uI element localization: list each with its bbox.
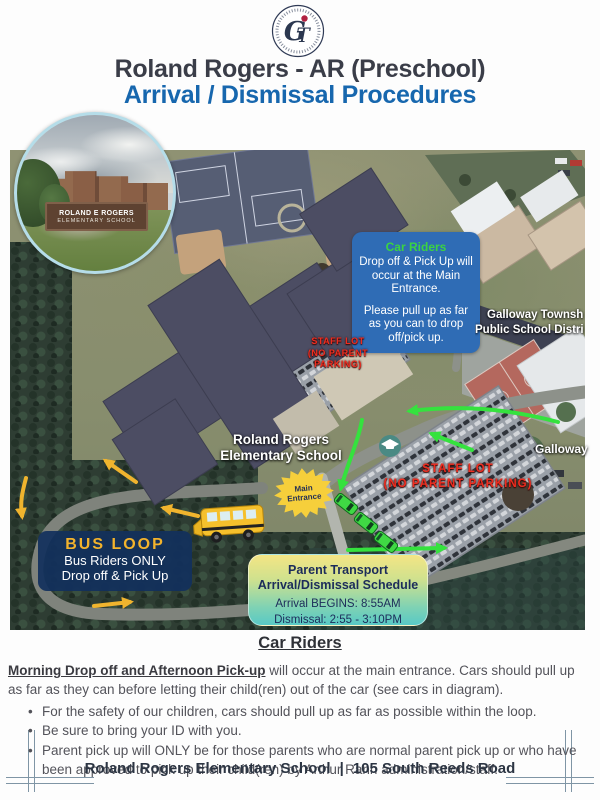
staff-lot-label-upper: STAFF LOT (NO PARENT PARKING)	[287, 336, 389, 371]
flyer-page: G T Roland Rogers - AR (Preschool) Arriv…	[0, 0, 600, 800]
galloway-map-label: Galloway	[535, 442, 588, 456]
page-subtitle: Arrival / Dismissal Procedures	[0, 82, 600, 108]
footer-separator: |	[340, 760, 344, 777]
arrival-time: Arrival BEGINS: 8:55AM	[249, 597, 427, 613]
school-photo-inset: ROLAND E ROGERS ELEMENTARY SCHOOL	[14, 112, 176, 274]
intro-lead: Morning Drop off and Afternoon Pick-up	[8, 663, 265, 678]
school-sign: ROLAND E ROGERS ELEMENTARY SCHOOL	[45, 202, 149, 231]
dismissal-time: Dismissal: 2:55 - 3:10PM	[249, 613, 427, 629]
car-riders-section: Car Riders Morning Drop off and Afternoo…	[8, 634, 592, 779]
bus-loop-box: BUS LOOP Bus Riders ONLY Drop off & Pick…	[38, 531, 192, 591]
bus-loop-title: BUS LOOP	[38, 536, 192, 554]
section-heading: Car Riders	[8, 634, 592, 653]
staff-lot-label-main: STAFF LOT (NO PARENT PARKING)	[376, 462, 540, 492]
district-logo: G T	[271, 4, 325, 58]
graduation-cap-icon	[379, 435, 401, 457]
logo-monogram-t: T	[296, 23, 311, 47]
school-map-label: Roland Rogers Elementary School	[186, 432, 376, 464]
parent-transport-schedule-box: Parent Transport Arrival/Dismissal Sched…	[248, 554, 428, 626]
bullet-item: For the safety of our children, cars sho…	[42, 702, 592, 721]
logo-apple-icon	[301, 15, 307, 21]
footer: Roland Rogers Elementary School|105 Sout…	[0, 760, 600, 777]
intro-paragraph: Morning Drop off and Afternoon Pick-up w…	[8, 661, 592, 699]
main-entrance-text: Main Entrance	[286, 482, 322, 503]
footer-school-name: Roland Rogers Elementary School	[85, 760, 331, 777]
car-riders-box-text-1: Drop off & Pick Up will occur at the Mai…	[358, 256, 474, 297]
bullet-item: Be sure to bring your ID with you.	[42, 721, 592, 740]
township-map-label: Galloway Townsh Public School Distri	[475, 308, 585, 338]
footer-address: 105 South Reeds Road	[353, 760, 516, 777]
header: Roland Rogers - AR (Preschool) Arrival /…	[0, 56, 600, 109]
car-riders-box-title: Car Riders	[358, 240, 474, 254]
page-title: Roland Rogers - AR (Preschool)	[0, 56, 600, 82]
